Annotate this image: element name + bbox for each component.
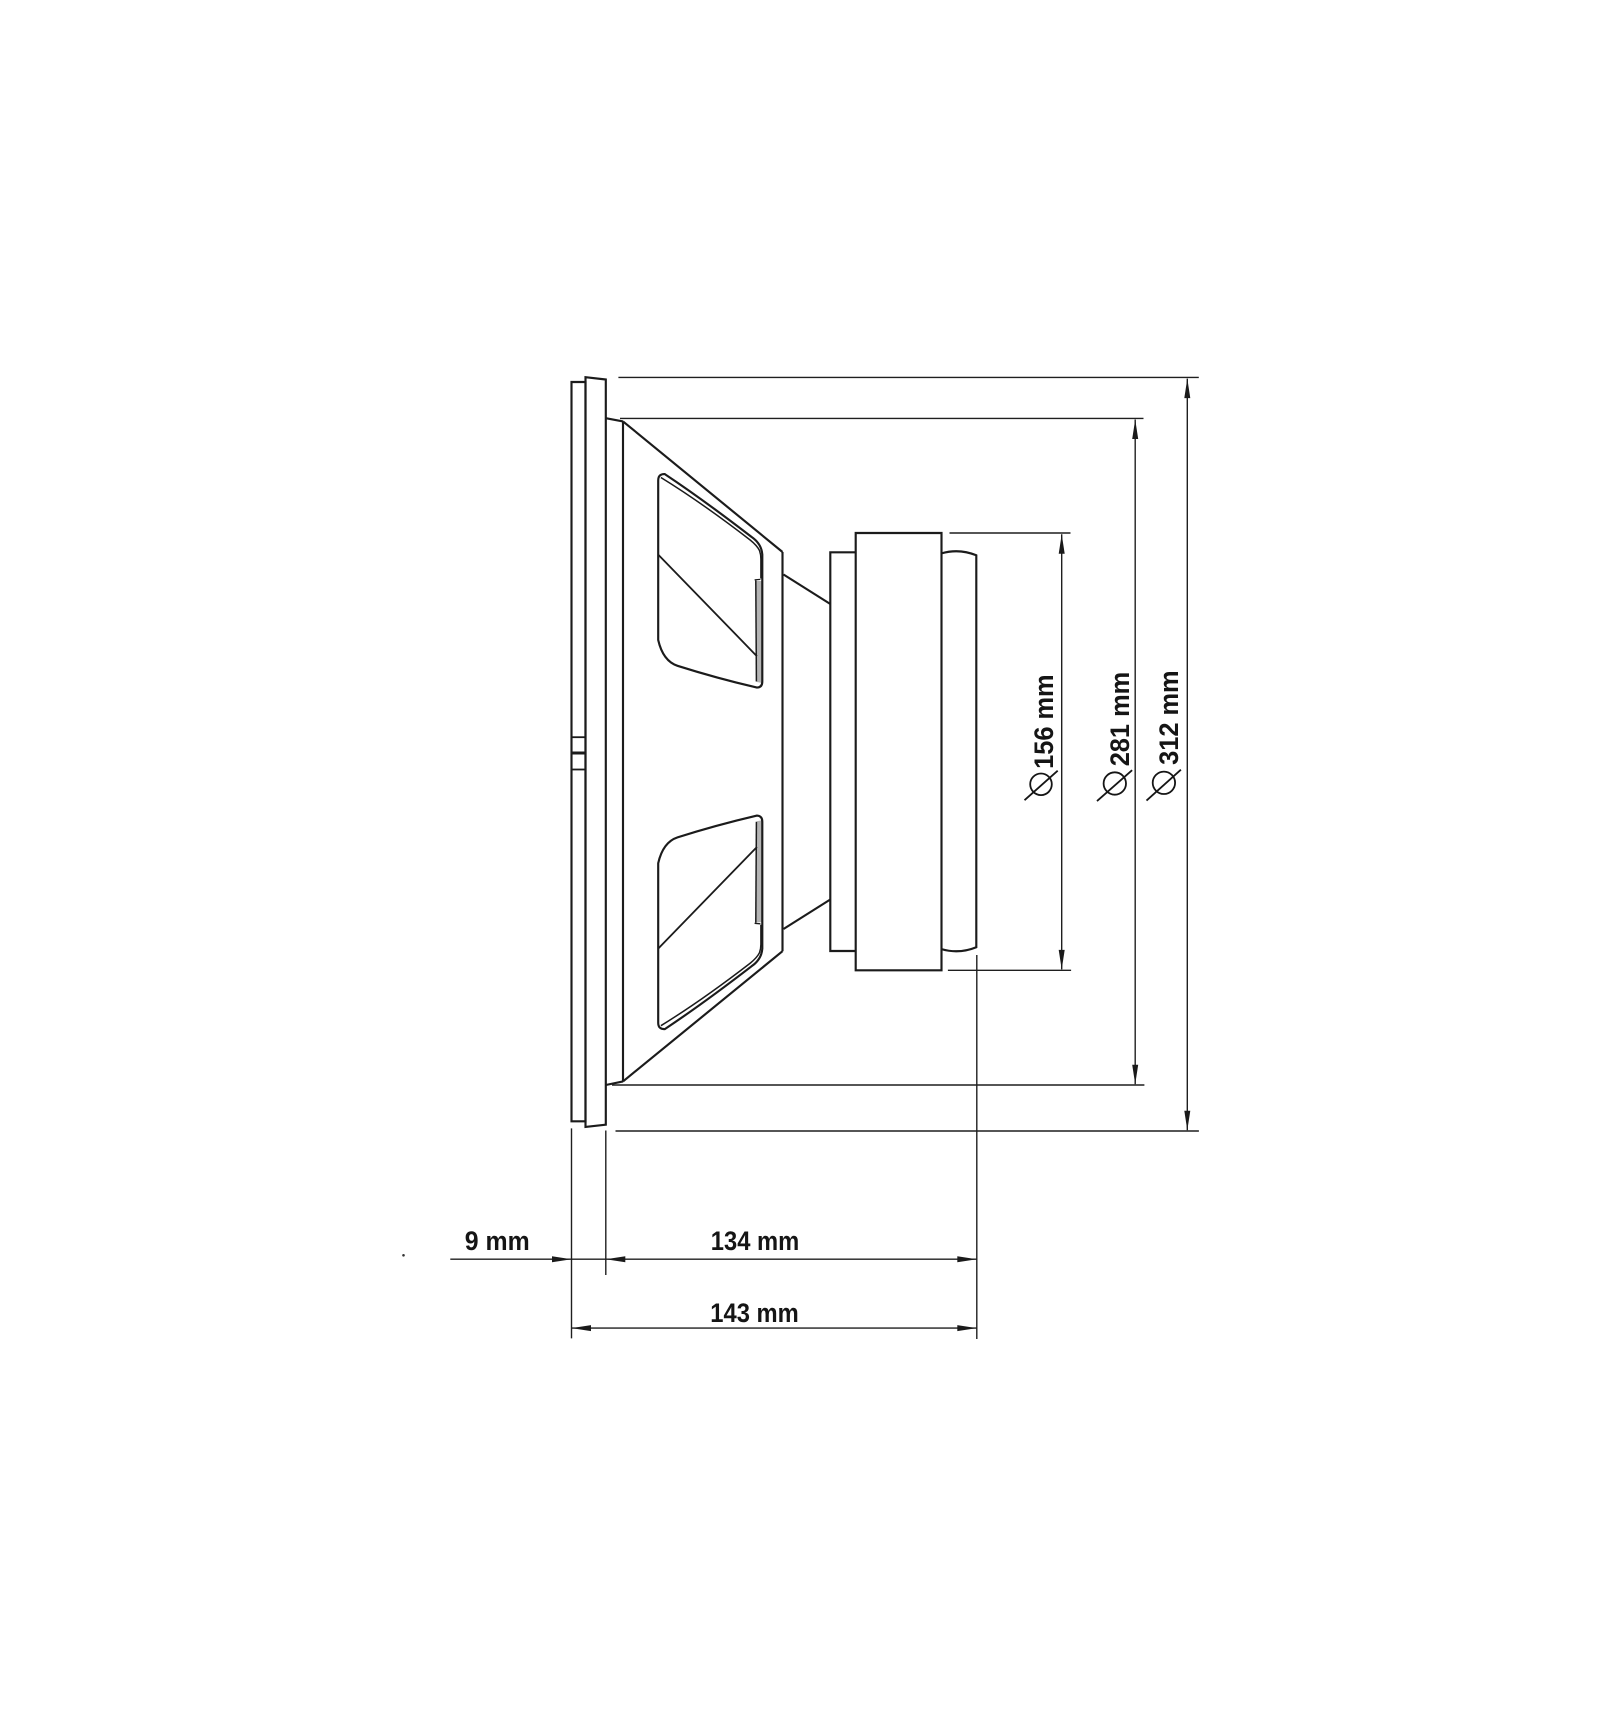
svg-text:281 mm: 281 mm bbox=[1104, 672, 1135, 766]
svg-text:134 mm: 134 mm bbox=[711, 1227, 799, 1257]
svg-text:156 mm: 156 mm bbox=[1028, 674, 1059, 768]
svg-text:143 mm: 143 mm bbox=[710, 1298, 798, 1328]
svg-text:312 mm: 312 mm bbox=[1153, 670, 1184, 764]
svg-text:9 mm: 9 mm bbox=[465, 1227, 530, 1256]
